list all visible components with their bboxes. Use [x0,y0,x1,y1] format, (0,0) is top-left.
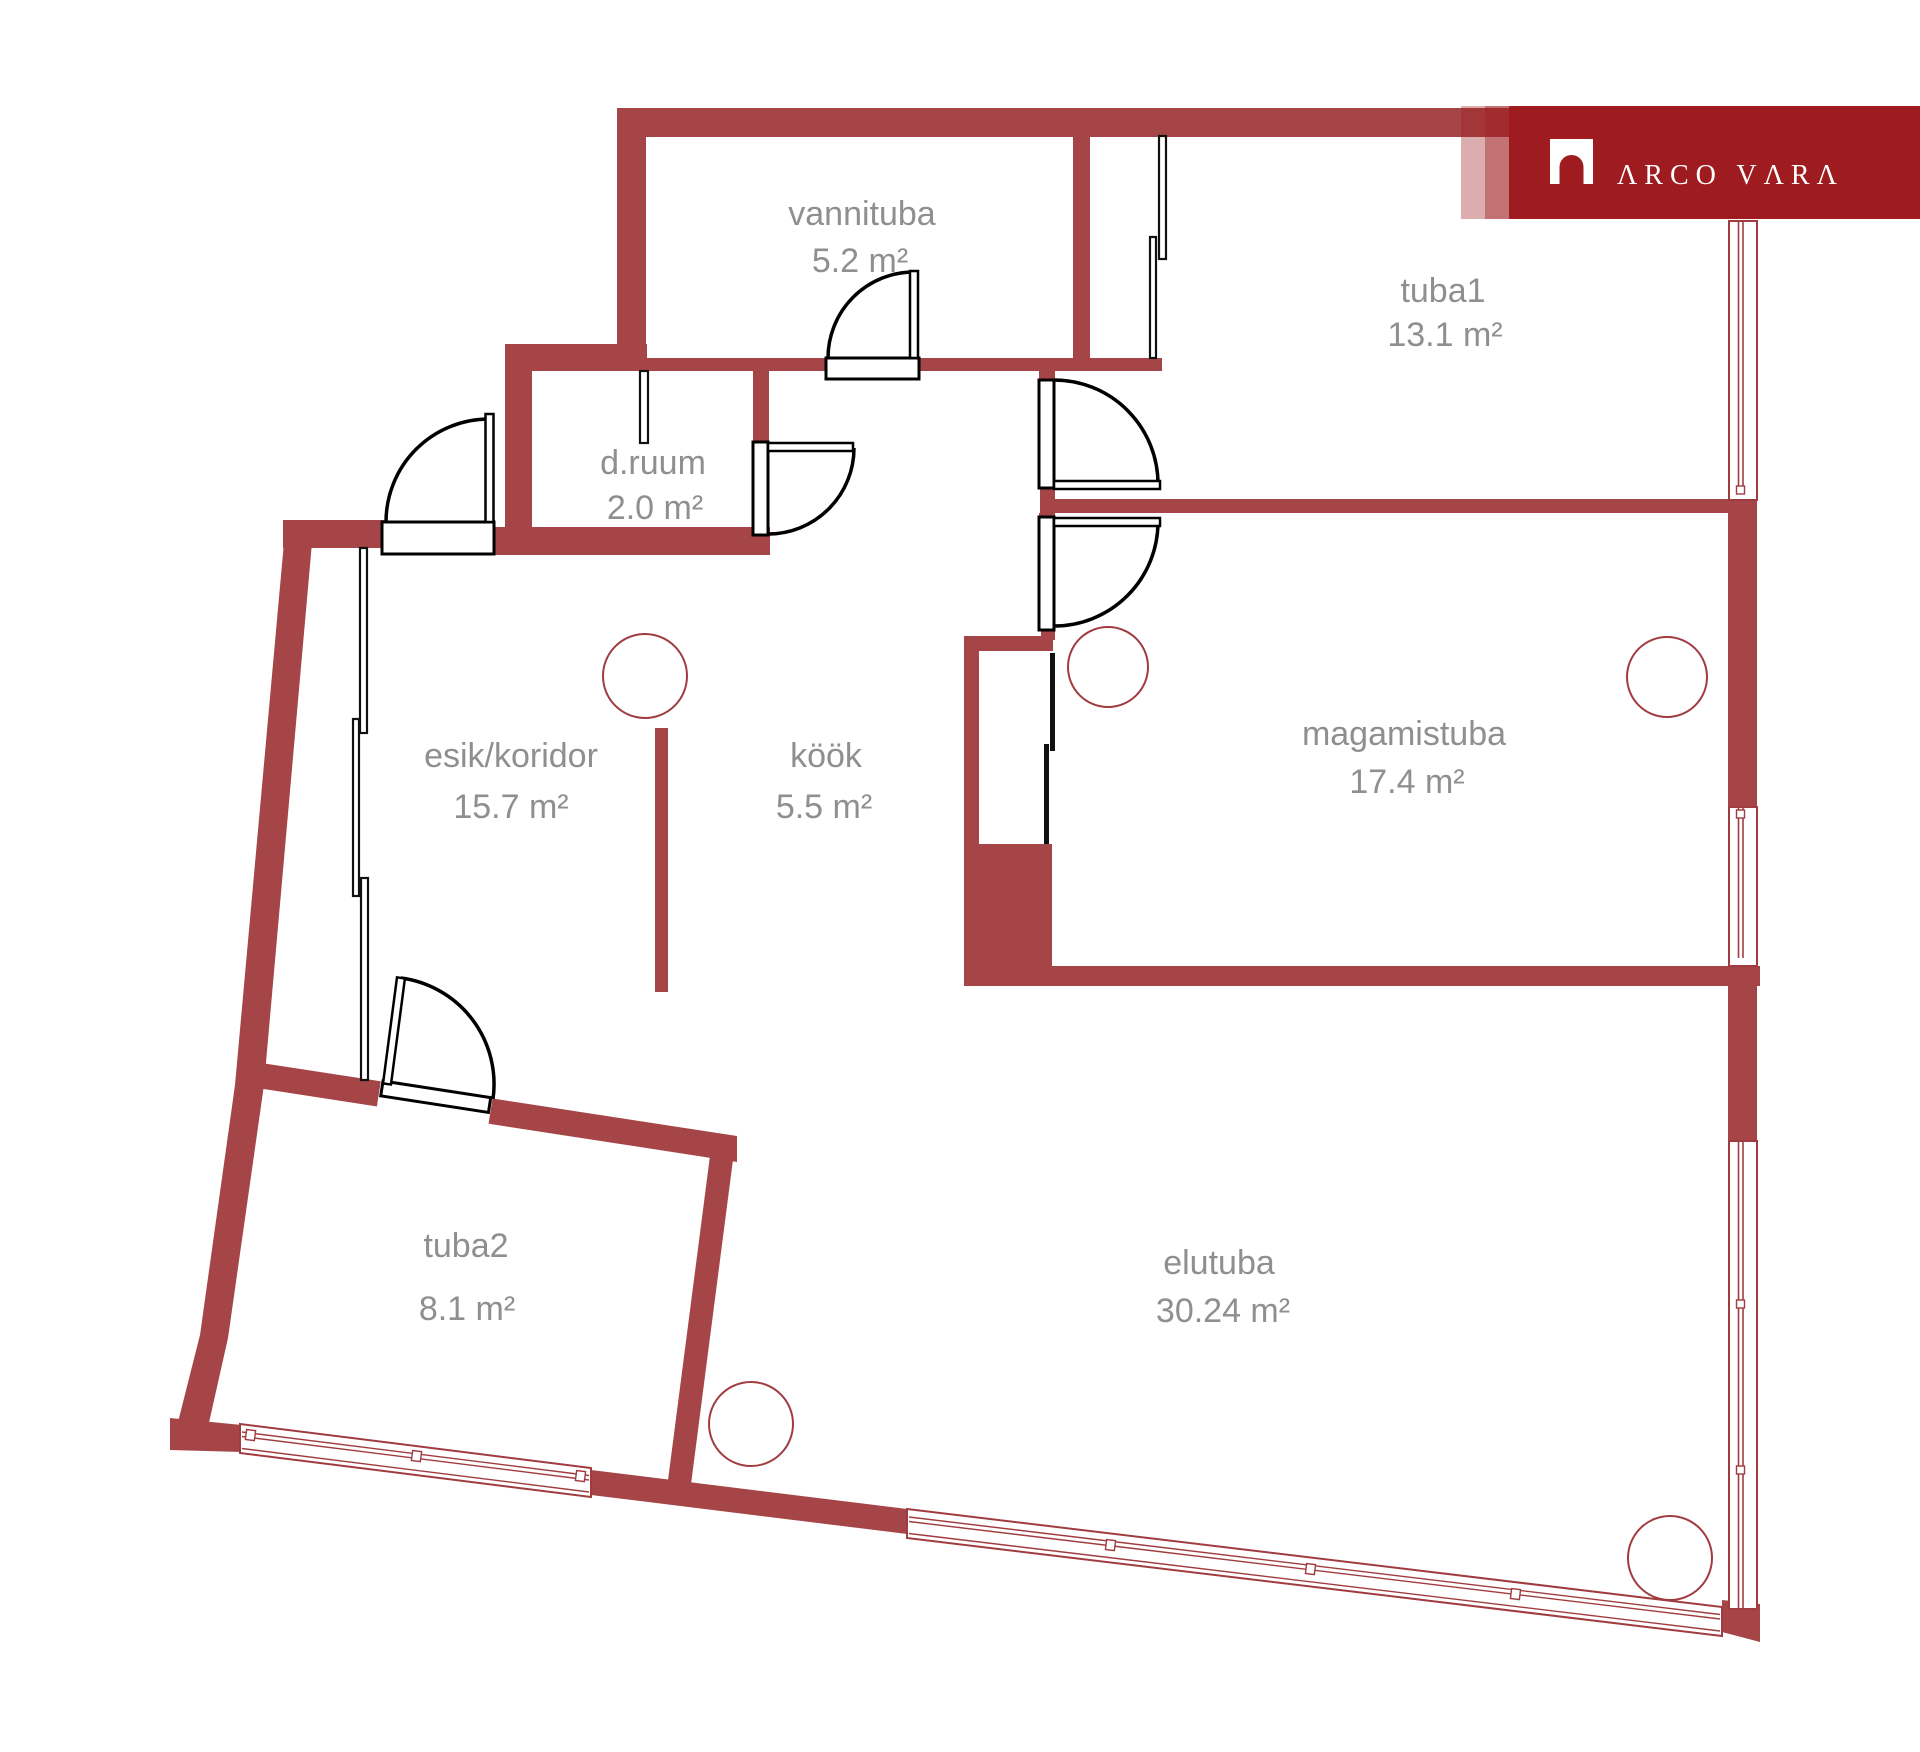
svg-text:köök: köök [790,737,863,775]
svg-text:5.5 m²: 5.5 m² [776,788,872,826]
svg-text:vannituba: vannituba [788,195,936,233]
svg-text:15.7 m²: 15.7 m² [453,788,568,826]
svg-text:magamistuba: magamistuba [1302,715,1506,753]
svg-text:13.1 m²: 13.1 m² [1387,316,1502,354]
svg-text:d.ruum: d.ruum [600,444,706,482]
svg-text:tuba1: tuba1 [1400,272,1485,310]
svg-text:5.2 m²: 5.2 m² [812,242,908,280]
svg-text:2.0 m²: 2.0 m² [607,489,703,527]
svg-text:17.4 m²: 17.4 m² [1349,763,1464,801]
svg-text:elutuba: elutuba [1163,1244,1275,1282]
svg-text:tuba2: tuba2 [423,1227,508,1265]
svg-text:esik/koridor: esik/koridor [424,737,598,775]
svg-text:ΛRCO VΛRΛ: ΛRCO VΛRΛ [1617,160,1844,191]
svg-text:8.1 m²: 8.1 m² [419,1290,515,1328]
svg-text:30.24 m²: 30.24 m² [1156,1292,1290,1330]
